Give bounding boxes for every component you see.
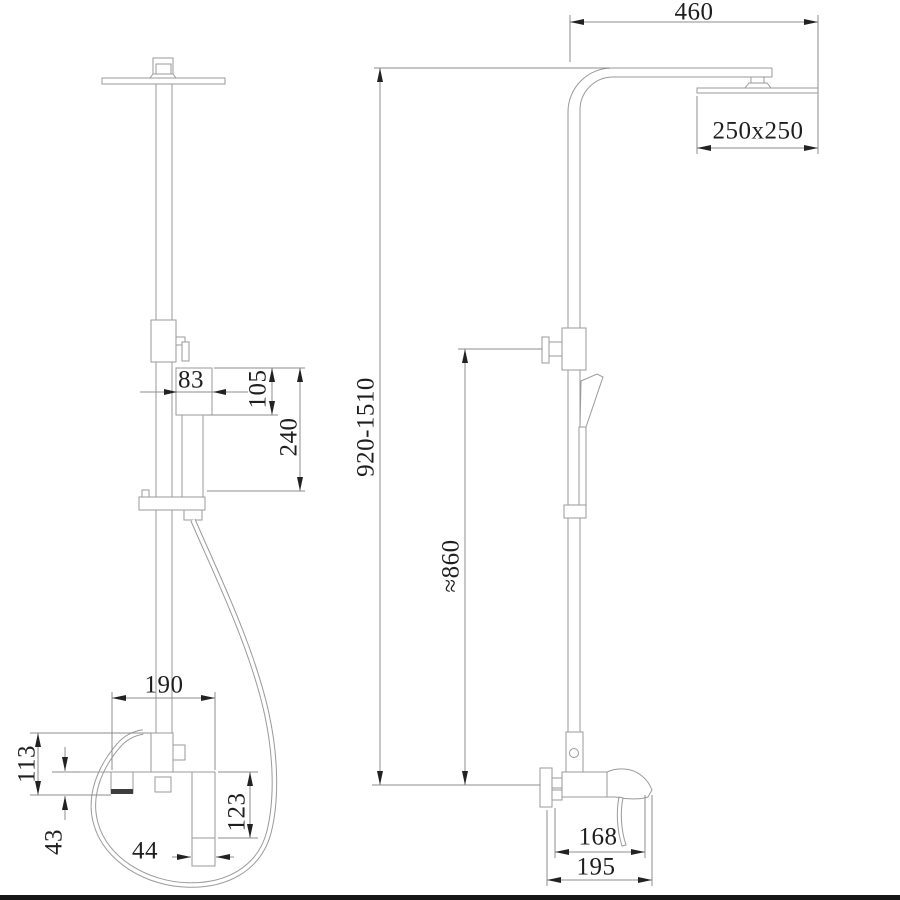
dim-mixer-width: 190 — [145, 673, 184, 698]
footer-bar — [0, 895, 900, 900]
dim-mixer-body-height: 113 — [15, 745, 40, 783]
dim-handshower-head-height: 105 — [246, 370, 271, 409]
dim-riser-height: ≈860 — [439, 539, 464, 592]
dim-arm-reach: 460 — [675, 0, 714, 25]
side-view-dimensions — [372, 15, 818, 886]
technical-drawing-page: 460 250x250 920-1510 ≈860 83 105 240 190… — [0, 0, 900, 900]
side-view — [540, 68, 818, 846]
dim-handshower-width: 83 — [178, 368, 204, 393]
dim-handle-width: 44 — [132, 839, 158, 864]
dim-mixer-depth: 195 — [577, 855, 616, 880]
dim-overall-height-range: 920-1510 — [354, 377, 379, 477]
dim-handshower-length: 240 — [277, 418, 302, 457]
dim-spout-drop-height: 43 — [42, 829, 67, 855]
front-view — [58, 58, 274, 885]
dim-handle-drop: 123 — [225, 793, 250, 832]
dim-overhead-shower-size: 250x250 — [713, 119, 804, 144]
dim-spout-reach: 168 — [579, 825, 618, 850]
